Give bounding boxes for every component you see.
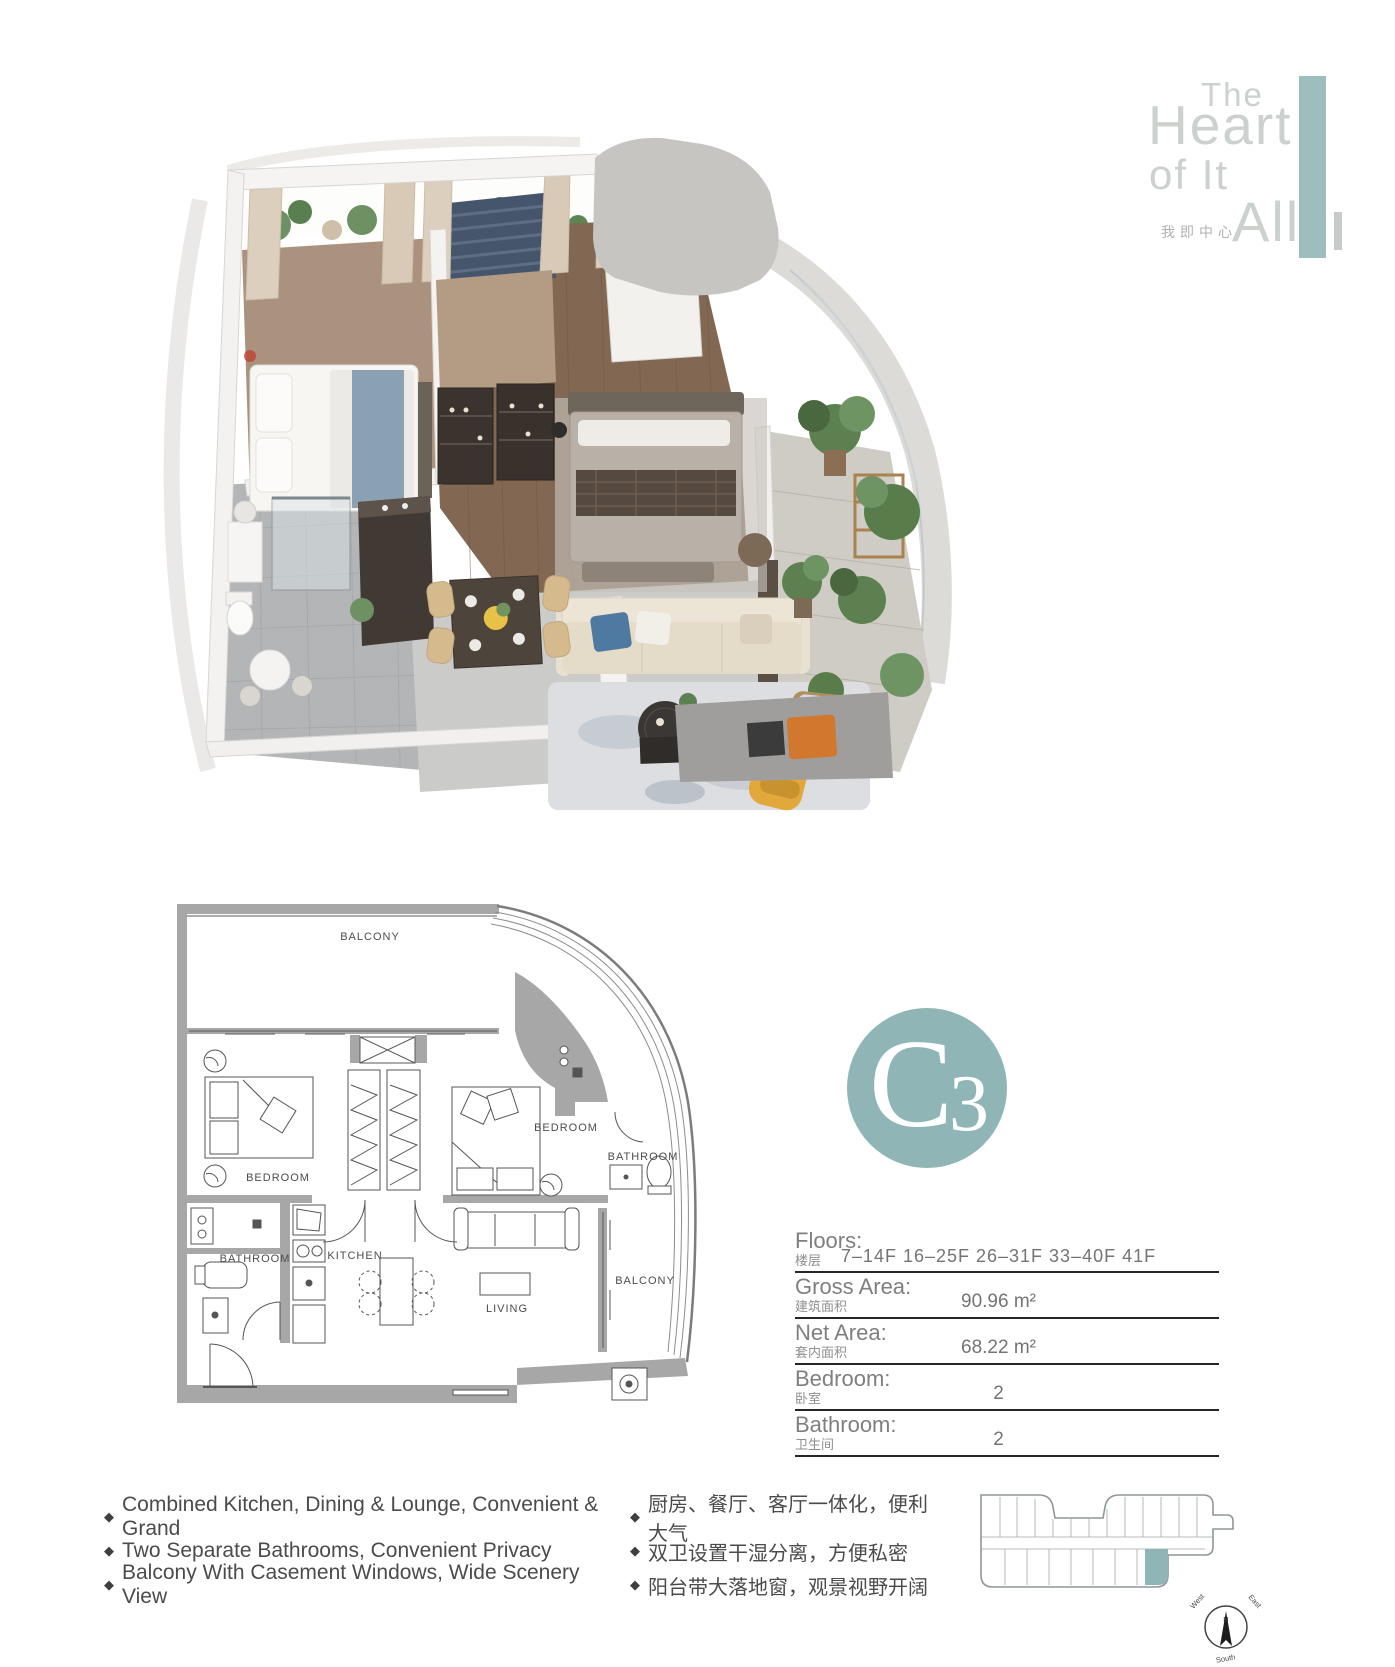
plan-doors (203, 1200, 457, 1387)
compass-east: East (1246, 1593, 1263, 1611)
compass-west: West (1188, 1591, 1207, 1610)
building-column (593, 138, 779, 296)
plan-wardrobes (348, 1070, 420, 1190)
detail-sublabel: 套内面积 (795, 1342, 847, 1361)
isometric-apartment-render (100, 130, 1000, 820)
detail-value: 7–14F 16–25F 26–31F 33–40F 41F (841, 1246, 1156, 1267)
keyplan-highlighted-unit (1145, 1549, 1168, 1585)
plan-bedroom-right (452, 1087, 562, 1196)
detail-sublabel: 楼层 (795, 1250, 821, 1269)
detail-row-bedroom: Bedroom: 卧室 2 (795, 1365, 1219, 1411)
detail-row-floors: Floors: 楼层 7–14F 16–25F 26–31F 33–40F 41… (795, 1227, 1219, 1273)
label-bathroom-right: BATHROOM (608, 1151, 679, 1163)
feature-text: Combined Kitchen, Dining & Lounge, Conve… (122, 1493, 614, 1541)
plan-bedroom-left (204, 1050, 313, 1187)
unit-letter: C (869, 1016, 953, 1155)
diamond-bullet-icon: ◆ (104, 1543, 114, 1559)
detail-sublabel: 建筑面积 (795, 1296, 847, 1315)
plan-dining (359, 1258, 434, 1325)
detail-row-net-area: Net Area: 套内面积 68.22 m² (795, 1319, 1219, 1365)
diamond-bullet-icon: ◆ (104, 1577, 114, 1593)
logo-line-all: All (1232, 194, 1300, 250)
unit-number: 3 (949, 1060, 989, 1148)
brand-logo: The Heart of It All 我即中心 (1085, 60, 1385, 270)
logo-gray-bar (1334, 212, 1342, 250)
feature-text: Two Separate Bathrooms, Convenient Priva… (122, 1539, 552, 1563)
label-bedroom-right: BEDROOM (534, 1122, 598, 1134)
diamond-bullet-icon: ◆ (630, 1509, 640, 1525)
feature-list-en: ◆ Combined Kitchen, Dining & Lounge, Con… (104, 1500, 614, 1602)
diamond-bullet-icon: ◆ (104, 1509, 114, 1525)
bedroom-right-furniture (551, 392, 772, 592)
logo-tagline: 我即中心 (1161, 222, 1237, 242)
feature-list-zh: ◆ 厨房、餐厅、客厅一体化，便利大气 ◆ 双卫设置干湿分离，方便私密 ◆ 阳台带… (630, 1500, 930, 1602)
feature-item: ◆ Balcony With Casement Windows, Wide Sc… (104, 1568, 614, 1602)
logo-teal-bar (1299, 76, 1326, 258)
detail-sublabel: 卧室 (795, 1388, 821, 1407)
label-bathroom-left: BATHROOM (220, 1253, 291, 1265)
feature-text: 阳台带大落地窗，观景视野开阔 (648, 1571, 928, 1600)
keyplan-outline (981, 1495, 1233, 1587)
label-bedroom-left: BEDROOM (246, 1172, 310, 1184)
logo-line-heart: Heart (1148, 98, 1293, 153)
plan-balcony-right (610, 1220, 647, 1400)
label-balcony-right: BALCONY (615, 1275, 675, 1287)
feature-text: 双卫设置干湿分离，方便私密 (648, 1537, 908, 1566)
feature-item: ◆ 阳台带大落地窗，观景视野开阔 (630, 1568, 930, 1602)
detail-value: 68.22 m² (961, 1337, 1036, 1359)
feature-item: ◆ 厨房、餐厅、客厅一体化，便利大气 (630, 1500, 930, 1534)
compass: N West East South (1185, 1575, 1270, 1667)
detail-row-bathroom: Bathroom: 卫生间 2 (795, 1411, 1219, 1457)
unit-details: Floors: 楼层 7–14F 16–25F 26–31F 33–40F 41… (795, 1227, 1219, 1457)
compass-north: N (1223, 1615, 1228, 1624)
detail-value: 2 (993, 1429, 1004, 1451)
label-kitchen: KITCHEN (327, 1250, 382, 1262)
detail-value: 90.96 m² (961, 1291, 1036, 1313)
unit-type-badge: C 3 (847, 1008, 1007, 1168)
compass-south: South (1215, 1652, 1236, 1664)
label-balcony-top: BALCONY (340, 931, 400, 943)
plan-kitchen (293, 1205, 325, 1343)
diamond-bullet-icon: ◆ (630, 1577, 640, 1593)
feature-item: ◆ 双卫设置干湿分离，方便私密 (630, 1534, 930, 1568)
logo-line-ofit: of It (1149, 154, 1229, 196)
detail-value: 2 (993, 1383, 1004, 1405)
bedroom-left-furniture (244, 350, 432, 511)
detail-sublabel: 卫生间 (795, 1434, 834, 1453)
detail-row-gross-area: Gross Area: 建筑面积 90.96 m² (795, 1273, 1219, 1319)
entry-porch (675, 692, 893, 782)
diamond-bullet-icon: ◆ (630, 1543, 640, 1559)
floor-plan-2d: BALCONY BEDROOM BEDROOM BATHROOM BATHROO… (165, 890, 710, 1425)
label-living: LIVING (486, 1303, 528, 1315)
feature-item: ◆ Combined Kitchen, Dining & Lounge, Con… (104, 1500, 614, 1534)
plan-bathroom-left (191, 1208, 280, 1340)
feature-text: Balcony With Casement Windows, Wide Scen… (122, 1561, 614, 1609)
plan-bathroom-right (560, 1046, 671, 1194)
